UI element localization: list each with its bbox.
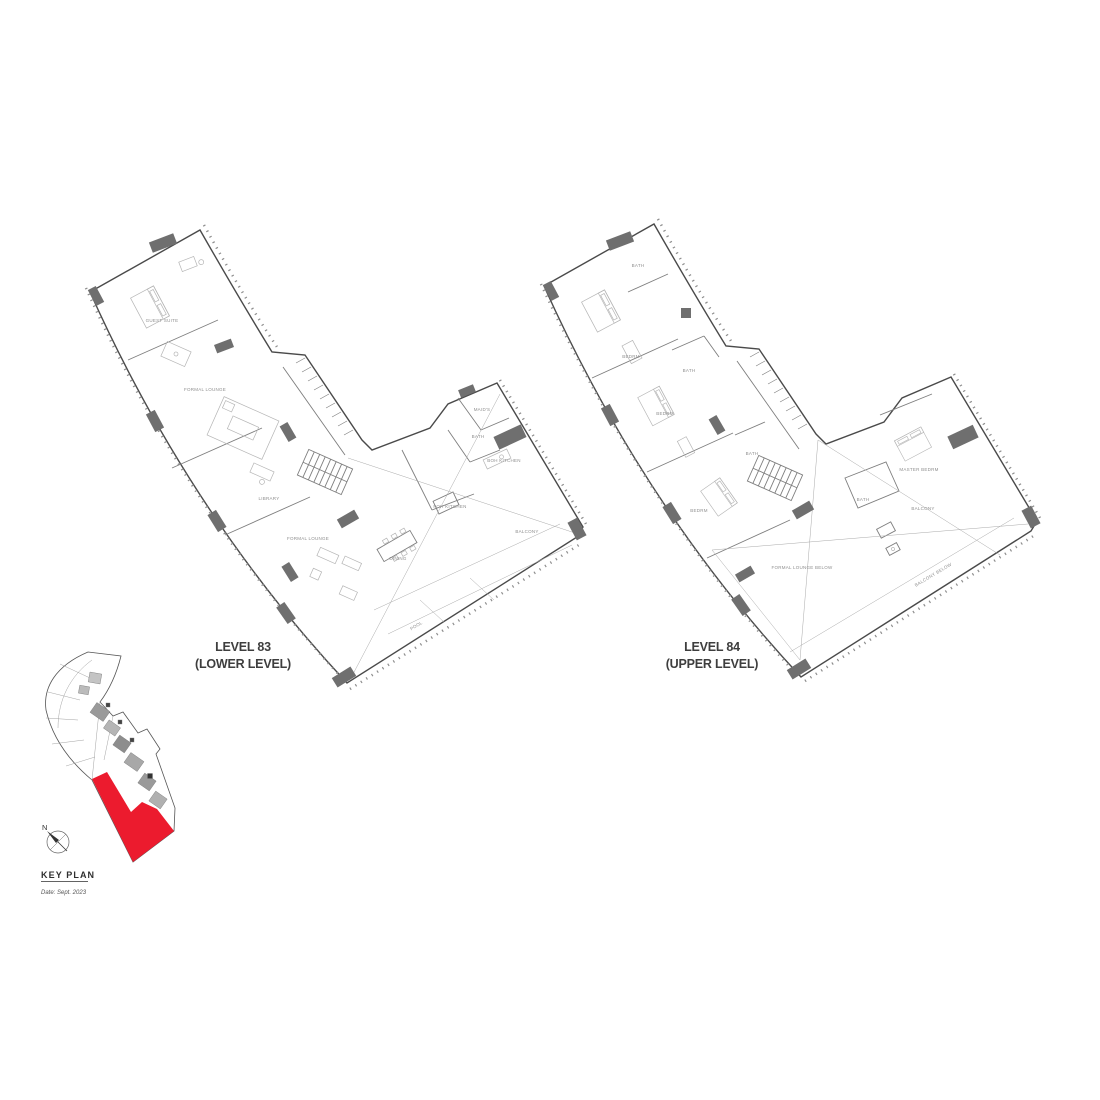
key-plan-title: KEY PLAN xyxy=(41,870,95,880)
north-compass-icon: N xyxy=(42,823,69,853)
room-label-bath-83: BATH xyxy=(472,434,485,439)
level-84-plan: BATH BEDRM BATH BEDRM BATH BEDRM BATH MA… xyxy=(541,219,1041,681)
room-label-guest-suite: GUEST SUITE xyxy=(146,318,179,323)
room-label-bath-master: BATH xyxy=(857,497,870,502)
room-label-foh-kitchen: FOH KITCHEN xyxy=(433,504,466,509)
level-84-caption-name: LEVEL 84 xyxy=(684,640,740,654)
room-label-balcony-84: BALCONY xyxy=(911,506,934,511)
north-label: N xyxy=(42,823,47,832)
room-label-balcony-83: BALCONY xyxy=(515,529,538,534)
room-label-formal-lounge-upper: FORMAL LOUNGE xyxy=(184,387,226,392)
room-label-maids: MAID'S xyxy=(474,407,491,412)
room-label-bath-3: BATH xyxy=(746,451,759,456)
key-plan-date: Date: Sept. 2023 xyxy=(41,890,87,896)
room-label-bath-2: BATH xyxy=(683,368,696,373)
level-83-plan: GUEST SUITE FORMAL LOUNGE LIBRARY FORMAL… xyxy=(86,225,587,689)
room-label-boh-kitchen: BOH KITCHEN xyxy=(487,458,521,463)
room-label-master-bedrm: MASTER BEDRM xyxy=(899,467,938,472)
level-83-caption-sublabel: (LOWER LEVEL) xyxy=(195,657,291,671)
level-83-outline xyxy=(90,230,583,683)
room-label-formal-lounge-below: FORMAL LOUNGE BELOW xyxy=(771,565,833,570)
level-83-caption-name: LEVEL 83 xyxy=(215,640,271,654)
room-label-dining: DINING xyxy=(389,556,406,561)
floor-plan-sheet: GUEST SUITE FORMAL LOUNGE LIBRARY FORMAL… xyxy=(0,0,1100,1100)
floor-plan-drawing: GUEST SUITE FORMAL LOUNGE LIBRARY FORMAL… xyxy=(0,0,1100,1100)
room-label-formal-lounge-lower: FORMAL LOUNGE xyxy=(287,536,329,541)
room-label-bedrm-3: BEDRM xyxy=(690,508,708,513)
level-84-caption-sublabel: (UPPER LEVEL) xyxy=(666,657,759,671)
key-plan: N KEY PLAN Date: Sept. 2023 xyxy=(41,652,175,896)
level-84-outline xyxy=(544,224,1037,677)
room-label-bath-top: BATH xyxy=(632,263,645,268)
room-label-bedrm-1: BEDRM xyxy=(622,354,640,359)
room-label-bedrm-2: BEDRM xyxy=(656,411,674,416)
room-label-library: LIBRARY xyxy=(259,496,280,501)
